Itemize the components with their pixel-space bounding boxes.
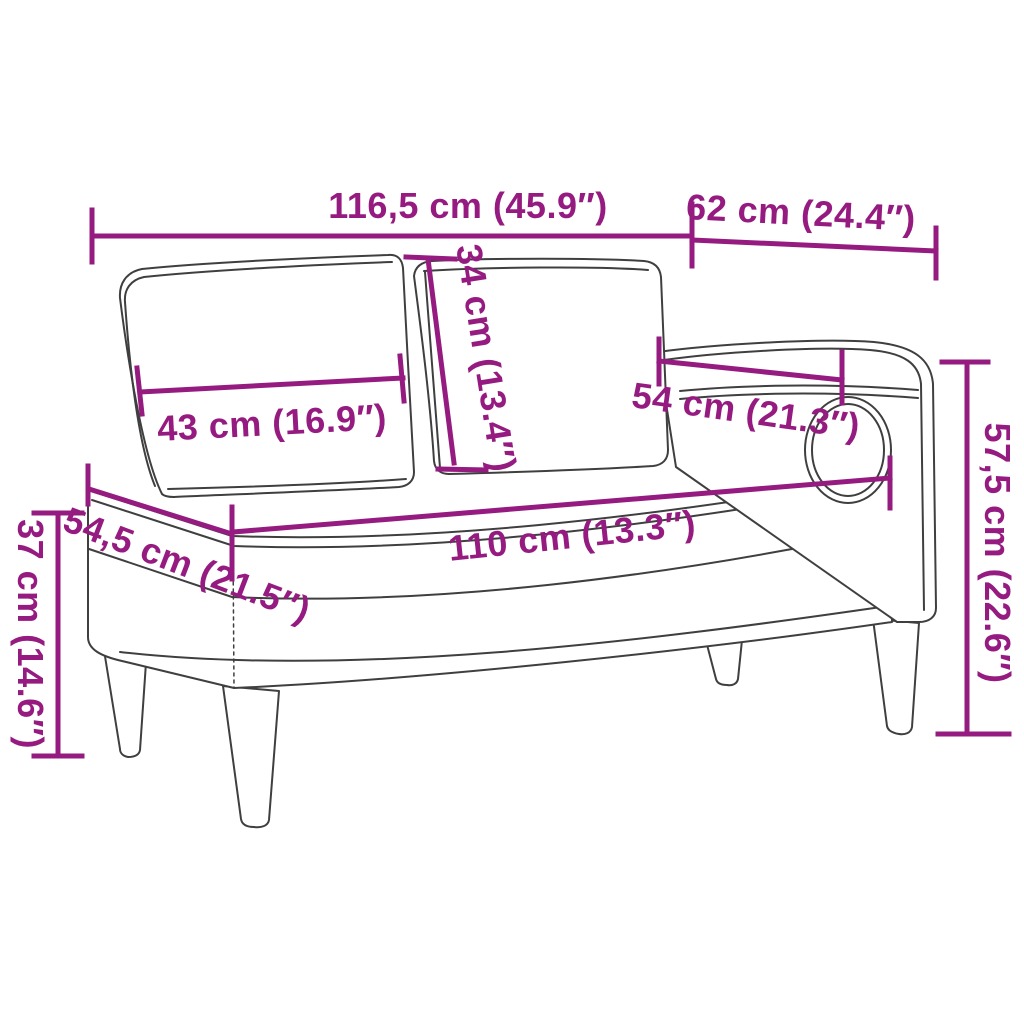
dimension-label-total-width: 116,5 cm (45.9″) (328, 185, 607, 227)
front-right-leg (873, 619, 919, 734)
dimension-label-seat-height: 37 cm (14.6″) (9, 519, 51, 749)
left-back-cushion (120, 255, 414, 497)
product-dimension-diagram: 116,5 cm (45.9″) 62 cm (24.4″) 34 cm (13… (0, 0, 1024, 1024)
front-left-leg (223, 686, 279, 827)
dimension-label-total-height: 57,5 cm (22.6″) (976, 423, 1018, 684)
diagram-line-art (0, 0, 1024, 1024)
